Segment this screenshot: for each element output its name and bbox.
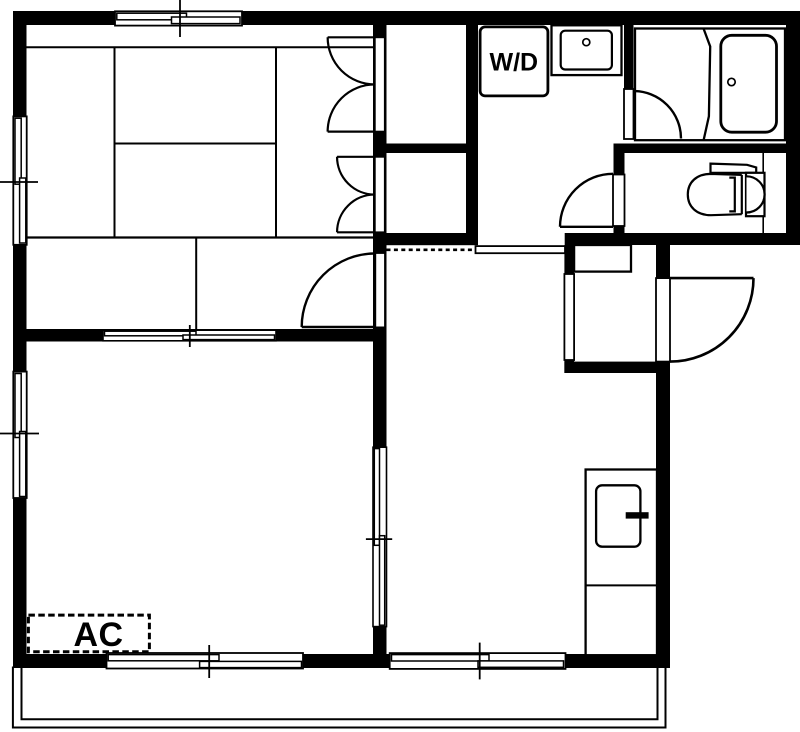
svg-text:W/D: W/D — [489, 48, 538, 76]
svg-text:AC: AC — [73, 616, 123, 654]
